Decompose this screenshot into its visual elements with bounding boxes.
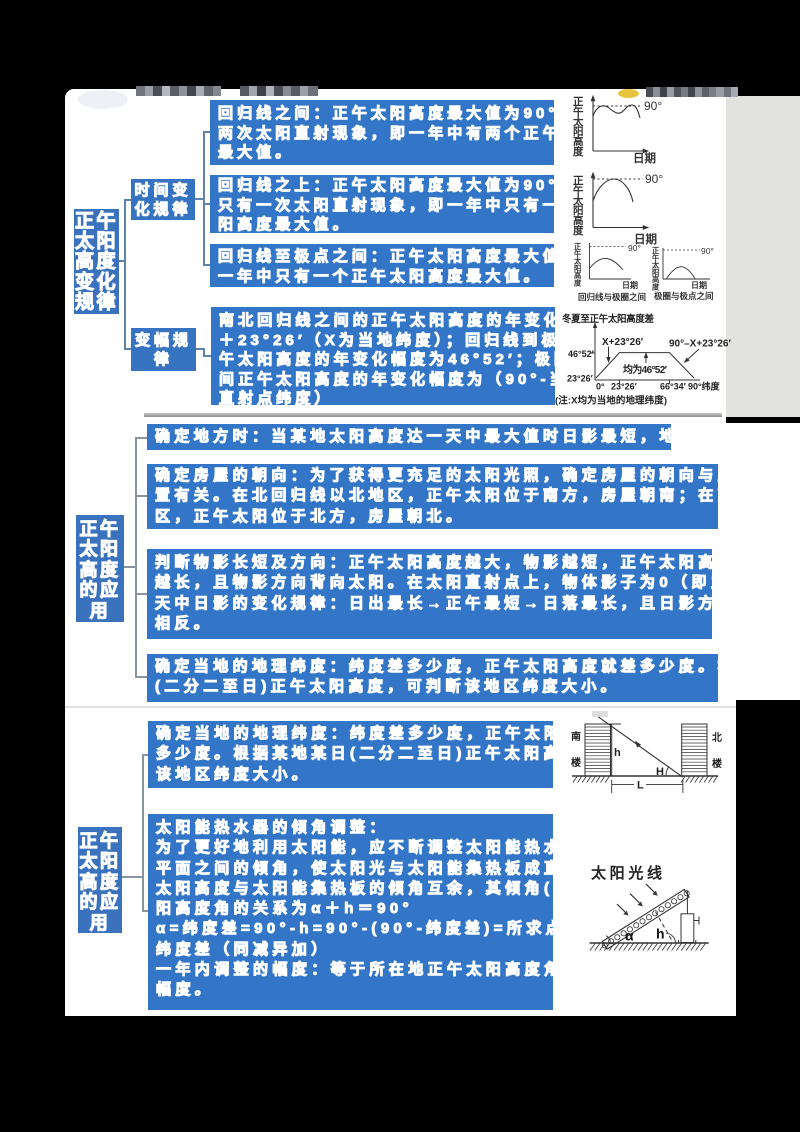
svg-text:0°: 0° xyxy=(596,382,605,392)
svg-text:度: 度 xyxy=(573,145,584,158)
svg-text:回归线与极圈之间: 回归线与极圈之间 xyxy=(578,292,646,302)
svg-text:X+23°26′: X+23°26′ xyxy=(602,337,644,348)
svg-text:90°: 90° xyxy=(628,243,641,253)
svg-text:h: h xyxy=(656,926,665,942)
svg-text:极圈与极点之间: 极圈与极点之间 xyxy=(654,291,714,301)
svg-text:日期: 日期 xyxy=(633,151,656,165)
svg-text:冬夏至正午太阳高度差: 冬夏至正午太阳高度差 xyxy=(562,313,654,325)
svg-text:H: H xyxy=(656,766,664,778)
svg-text:23°26′: 23°26′ xyxy=(567,374,593,384)
svg-text:北: 北 xyxy=(712,731,722,744)
svg-text:α: α xyxy=(625,928,634,944)
svg-text:90°–X+23°26′: 90°–X+23°26′ xyxy=(669,339,731,350)
svg-text:楼: 楼 xyxy=(571,756,581,769)
svg-text:23°26′: 23°26′ xyxy=(611,382,637,392)
svg-text:南: 南 xyxy=(571,730,581,743)
svg-text:均为46°52′: 均为46°52′ xyxy=(623,363,668,376)
svg-text:日期: 日期 xyxy=(622,280,638,290)
svg-text:度: 度 xyxy=(574,279,582,288)
svg-text:90°: 90° xyxy=(701,246,714,256)
svg-text:h: h xyxy=(614,747,621,759)
svg-text:90°纬度: 90°纬度 xyxy=(688,381,721,392)
svg-text:度: 度 xyxy=(573,224,584,237)
svg-text:楼: 楼 xyxy=(712,757,722,770)
svg-text:日期: 日期 xyxy=(691,280,707,290)
svg-text:L: L xyxy=(637,780,644,792)
svg-text:46°52′: 46°52′ xyxy=(568,349,594,359)
svg-text:90°: 90° xyxy=(644,99,662,113)
svg-text:(注:X均为当地的地理纬度): (注:X均为当地的地理纬度) xyxy=(555,395,667,407)
svg-text:66°34′: 66°34′ xyxy=(660,382,686,392)
svg-text:太阳光线: 太阳光线 xyxy=(591,864,662,882)
svg-text:90°: 90° xyxy=(645,172,663,186)
